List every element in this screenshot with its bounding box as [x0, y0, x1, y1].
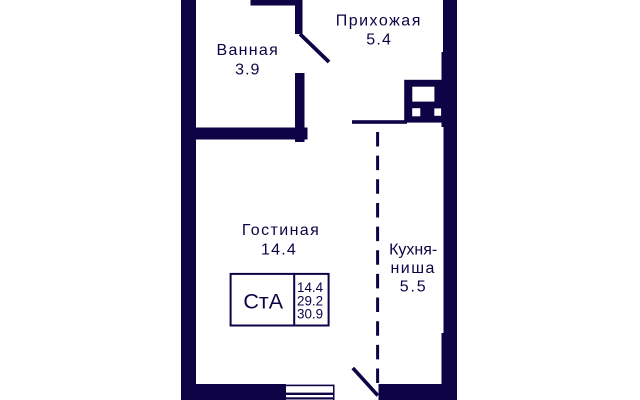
svg-text:30.9: 30.9: [297, 306, 323, 321]
svg-text:ниша: ниша: [390, 260, 436, 277]
svg-text:Ванная: Ванная: [216, 42, 279, 59]
svg-text:Кухня-: Кухня-: [389, 241, 437, 258]
svg-text:14.4: 14.4: [261, 241, 297, 258]
svg-text:Прихожая: Прихожая: [336, 12, 422, 29]
svg-text:5.5: 5.5: [400, 279, 428, 296]
svg-text:СтА: СтА: [243, 290, 283, 314]
svg-text:3.9: 3.9: [235, 61, 260, 78]
svg-text:5.4: 5.4: [366, 31, 392, 48]
svg-text:Гостиная: Гостиная: [242, 222, 320, 239]
